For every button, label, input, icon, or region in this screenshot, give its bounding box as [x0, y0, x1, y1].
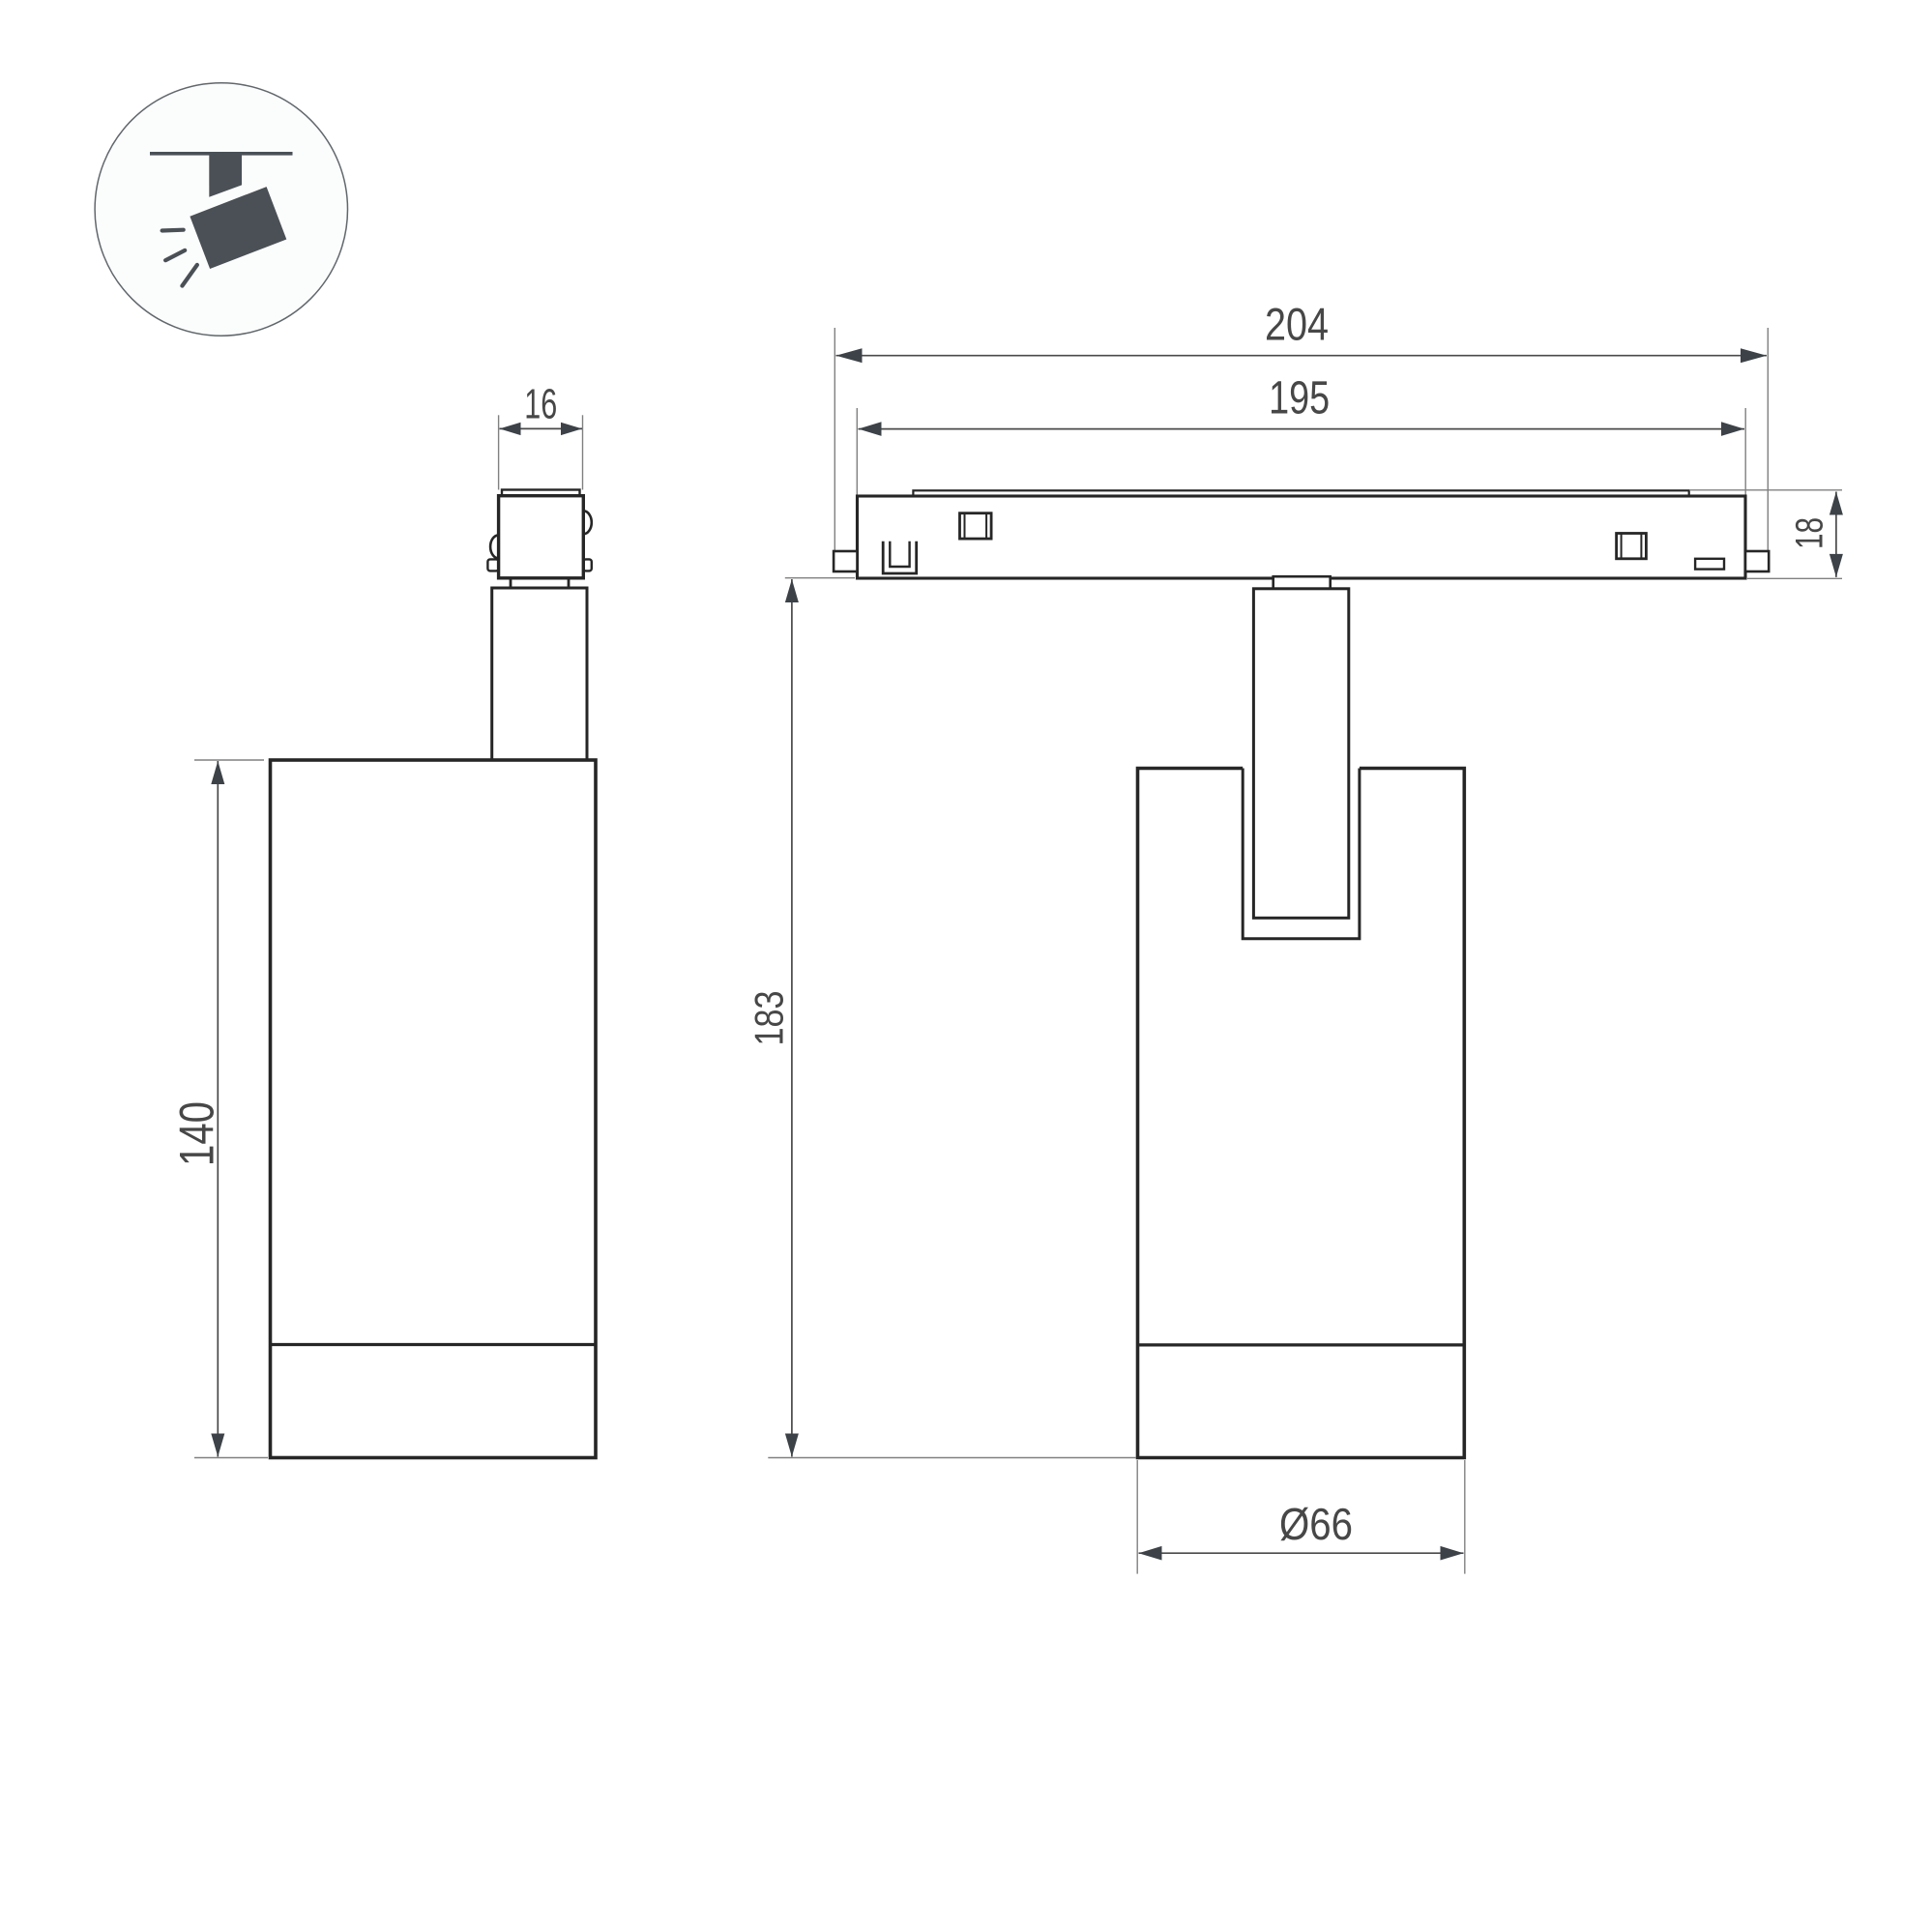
svg-text:183: 183: [746, 991, 791, 1046]
svg-text:195: 195: [1269, 373, 1330, 424]
svg-text:140: 140: [169, 1101, 223, 1166]
svg-text:204: 204: [1265, 298, 1329, 349]
svg-text:16: 16: [524, 381, 557, 428]
svg-text:18: 18: [1789, 517, 1831, 549]
svg-text:Ø66: Ø66: [1279, 1499, 1353, 1549]
